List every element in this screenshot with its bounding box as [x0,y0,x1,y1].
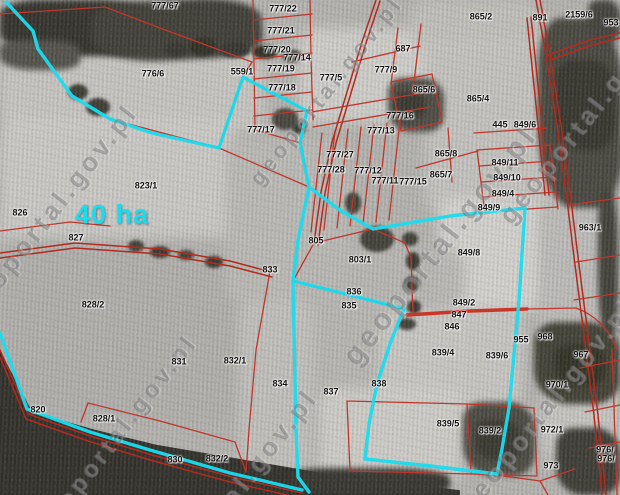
parcel-label: 445 [492,121,507,130]
parcel-label: 831 [171,358,186,367]
parcel-label: 838 [371,380,386,389]
parcel-label: 777/21 [267,27,295,36]
parcel-label: 820 [30,406,45,415]
parcel-label: 777/11 [371,177,398,186]
parcel-label: 777/18 [268,84,296,93]
parcel-label: 777/28 [317,166,345,175]
parcel-label: 2159/6 [565,11,593,20]
parcel-label: 967 [573,351,588,360]
parcel-label: 849/10 [493,174,521,183]
parcel-label: 972/1 [541,426,564,435]
parcel-label: 955 [513,336,528,345]
parcel-label: 835 [341,302,356,311]
parcel-label: 865/8 [435,150,458,159]
parcel-label: 836 [346,288,361,297]
parcel-label: 968 [537,333,552,342]
parcel-label: 963/1 [579,224,602,233]
parcel-label: 953 [603,19,618,28]
parcel-label: 849/8 [458,249,481,258]
parcel-label: 777/22 [269,5,297,14]
parcel-label: 832/1 [224,357,247,366]
area-size-label: 40 ha [75,202,149,229]
parcel-label: 777/27 [326,151,354,160]
parcel-label: 832/2 [206,455,229,464]
map-viewport[interactable]: geoportal.gov.plgeoportal.gov.plgeoporta… [0,0,620,495]
parcel-label: 865/4 [467,95,490,104]
parcel-label: 777/67 [151,2,179,11]
parcel-label: 839/4 [432,349,455,358]
parcel-label: 803/1 [349,256,372,265]
parcel-label: 837 [323,388,338,397]
parcel-label: 833 [262,266,277,275]
parcel-label: 830 [167,456,182,465]
parcel-label: 839/6 [486,352,509,361]
parcel-label: 828/2 [82,301,105,310]
parcel-label: 846 [444,323,459,332]
parcel-label: 849/11 [491,159,518,168]
parcel-label: 777/19 [267,65,295,74]
parcel-label: 834 [272,380,287,389]
parcel-label: 828/1 [93,415,116,424]
parcel-label: 559/1 [231,68,254,77]
parcel-label: 970/1 [546,381,569,390]
parcel-label: 849/9 [478,204,501,213]
parcel-label: 839/2 [479,427,502,436]
parcel-label: 976/ [597,455,615,464]
parcel-label: 826 [12,209,27,218]
parcel-label: 865/2 [470,13,493,22]
parcel-label: 849/2 [453,299,476,308]
parcel-label: 827 [68,234,83,243]
parcel-label: 891 [532,14,547,23]
parcel-label: 777/12 [354,167,382,176]
parcel-label: 777/9 [375,66,398,75]
parcel-label: 847 [451,311,466,320]
parcel-label: 805 [308,237,323,246]
parcel-label: 777/17 [247,126,275,135]
parcel-label: 973 [543,462,558,471]
parcel-label: 777/15 [399,178,427,187]
parcel-label: 687 [395,45,410,54]
parcel-label: 823/1 [135,182,158,191]
parcel-label: 865/7 [430,171,453,180]
parcel-label: 865/6 [413,86,436,95]
parcel-label: 777/13 [367,127,395,136]
parcel-label: 849/6 [514,121,537,130]
parcel-label: 777/14 [283,54,311,63]
parcel-label: 777/16 [386,112,414,121]
parcel-label: 839/5 [437,420,460,429]
parcel-label: 776/6 [142,70,165,79]
parcel-label: 777/5 [320,74,343,83]
parcel-label: 849/4 [492,190,515,199]
